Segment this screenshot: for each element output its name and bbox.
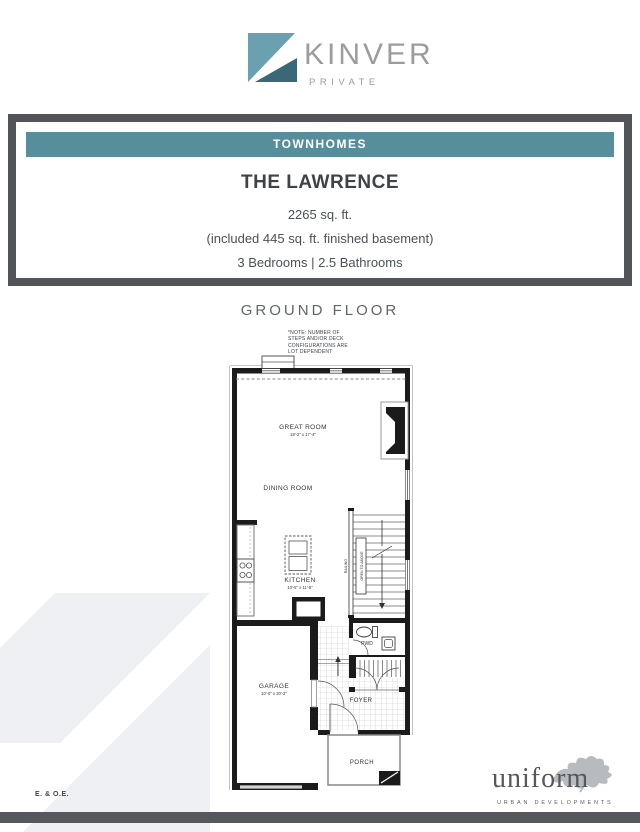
brand-tagline: PRIVATE xyxy=(309,77,380,88)
kitchen-garage-wall xyxy=(232,620,317,626)
developer-logo: uniform xyxy=(492,763,589,795)
garage-dims: 10'-0" x 20'-2" xyxy=(261,691,287,696)
great-room-dims: 19'-2" x 17'-4" xyxy=(290,432,316,437)
kitchen-island xyxy=(285,536,311,574)
kitchen-pantry xyxy=(292,597,325,621)
staircase: OPEN TO ABOVE RAILING xyxy=(344,508,405,618)
wall-stub xyxy=(234,520,257,525)
footer-bar xyxy=(0,812,640,823)
powder-room: PWD xyxy=(349,618,410,660)
porch: PORCH xyxy=(328,735,400,785)
floor-heading: GROUND FLOOR xyxy=(0,302,640,319)
plan-title: THE LAWRENCE xyxy=(16,172,624,194)
flyer-page: KINVER PRIVATE TOWNHOMES THE LAWRENCE 22… xyxy=(0,0,640,832)
open-to-above-label: OPEN TO ABOVE xyxy=(360,551,364,581)
stove xyxy=(237,559,254,582)
plan-basement-note: (included 445 sq. ft. finished basement) xyxy=(16,231,624,246)
brand-name: KINVER xyxy=(304,38,434,72)
kitchen-label: KITCHEN xyxy=(284,577,315,584)
sink xyxy=(382,637,395,650)
developer-subtitle: URBAN DEVELOPMENTS xyxy=(497,800,613,806)
porch-label: PORCH xyxy=(350,760,374,766)
townhomes-banner: TOWNHOMES xyxy=(26,132,614,157)
great-room-label: GREAT ROOM xyxy=(279,424,327,431)
foyer-label: FOYER xyxy=(350,698,373,704)
toilet xyxy=(357,627,372,637)
entry-steps xyxy=(349,655,405,678)
garage-door xyxy=(232,783,318,790)
floor-plan: GREAT ROOM 19'-2" x 17'-4" DINING ROOM K… xyxy=(222,352,422,797)
pwd-label: PWD xyxy=(361,641,373,647)
kitchen-dims: 10'-5" x 11'-6" xyxy=(287,585,313,590)
eoe-note: E. & O.E. xyxy=(35,791,69,798)
deck-steps xyxy=(262,356,294,369)
kinver-logo-icon xyxy=(248,32,298,82)
info-card: TOWNHOMES THE LAWRENCE 2265 sq. ft. (inc… xyxy=(8,114,632,286)
railing-label: RAILING xyxy=(344,559,348,574)
garage-label: GARAGE xyxy=(259,683,289,690)
plan-sqft: 2265 sq. ft. xyxy=(16,207,624,222)
stair-railing xyxy=(349,510,353,618)
fireplace xyxy=(381,402,408,459)
plan-beds-baths: 3 Bedrooms | 2.5 Bathrooms xyxy=(16,255,624,270)
dining-room-label: DINING ROOM xyxy=(263,485,312,492)
